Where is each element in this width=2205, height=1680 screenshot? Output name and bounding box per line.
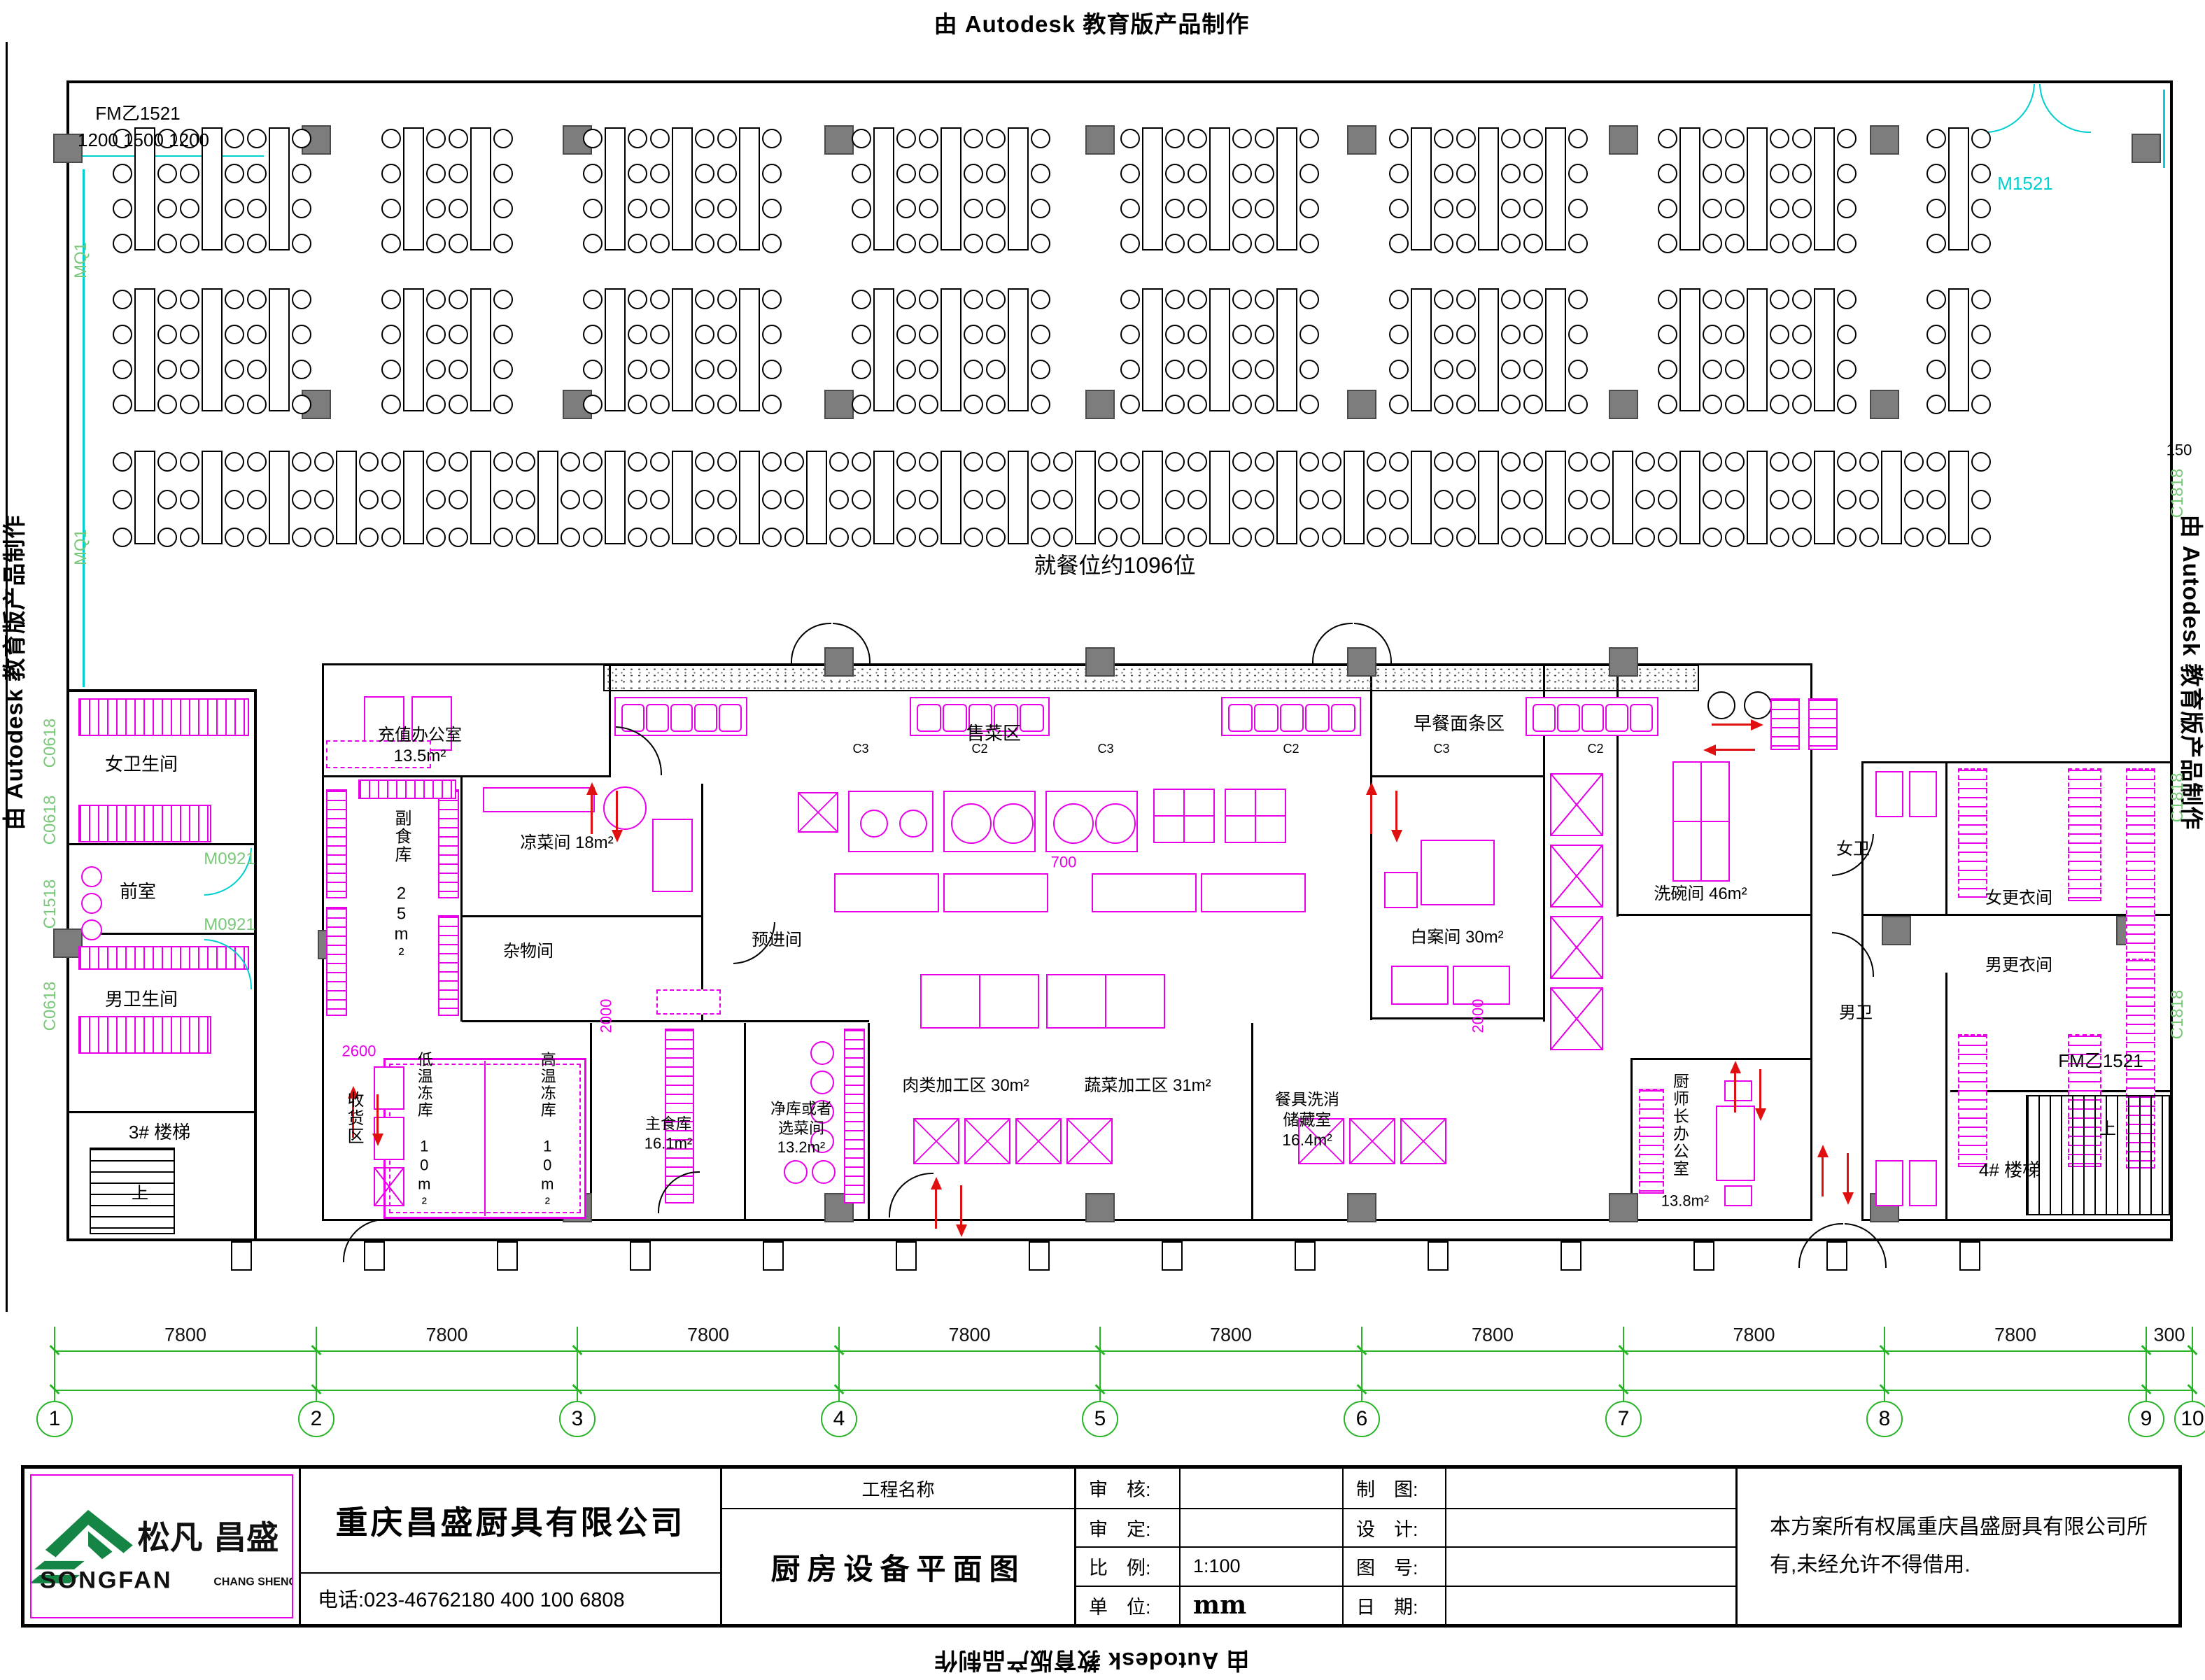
chair-icon [292, 129, 311, 148]
round-fixture [784, 1160, 808, 1184]
chair-icon [426, 528, 446, 547]
chair-icon [1120, 129, 1140, 148]
floor-plan: 1780027800378004780057800678007780087800… [0, 0, 2205, 1680]
worktable [1875, 771, 1903, 817]
chair-icon [1725, 129, 1745, 148]
door-arc [1832, 932, 1874, 977]
door-arc [658, 1171, 700, 1213]
chair-icon [1792, 164, 1812, 183]
grid-tick [577, 1327, 578, 1404]
plan-label: 男更衣间 [1985, 955, 2052, 976]
chair-icon [292, 199, 311, 218]
flow-arrow-icon [1817, 1145, 1829, 1205]
chair-icon [650, 395, 670, 414]
dining-table [336, 451, 357, 544]
chair-icon [157, 528, 177, 547]
structural-column [1347, 1193, 1376, 1222]
chair-icon [381, 490, 401, 509]
chair-icon [449, 360, 468, 379]
tray-slot [670, 704, 693, 732]
tray-slot [1228, 704, 1253, 732]
dining-table [1881, 451, 1902, 544]
chair-icon [1523, 199, 1543, 218]
field-label: 日 期: [1342, 1586, 1445, 1625]
chair-icon [762, 452, 782, 472]
chair-icon [1501, 129, 1521, 148]
chair-icon [1255, 234, 1274, 253]
chair-icon [986, 234, 1006, 253]
chair-icon [1703, 452, 1722, 472]
tray-slot [917, 704, 941, 732]
chair-icon [583, 199, 603, 218]
chair-icon [426, 199, 446, 218]
chair-icon [1770, 199, 1789, 218]
chair-icon [113, 452, 132, 472]
plan-label: MQ1 [71, 529, 92, 565]
chair-icon [695, 452, 714, 472]
locker-row [2068, 768, 2101, 901]
chair-icon [292, 395, 311, 414]
chair-icon [180, 325, 199, 344]
chair-icon [1255, 325, 1274, 344]
chair-icon [986, 528, 1006, 547]
chair-icon [628, 452, 647, 472]
sink-unit [1550, 845, 1603, 908]
field-value [1445, 1508, 1738, 1547]
chair-icon [1232, 528, 1252, 547]
chair-icon [247, 234, 267, 253]
burner-icon [899, 810, 927, 838]
chair-icon [1926, 164, 1946, 183]
chair-icon [1389, 234, 1409, 253]
chair-icon [1188, 452, 1207, 472]
round-fixture [81, 919, 102, 940]
chair-icon [426, 395, 446, 414]
chair-icon [1971, 234, 1991, 253]
chair-icon [113, 290, 132, 309]
chair-icon [583, 325, 603, 344]
chair-icon [247, 395, 267, 414]
dimension-value: 7800 [1733, 1325, 1775, 1346]
wall [744, 1023, 746, 1221]
chair-icon [1926, 528, 1946, 547]
chair-icon [1165, 199, 1185, 218]
chair-icon [1568, 528, 1588, 547]
chair-icon [561, 490, 580, 509]
chair-icon [1904, 490, 1924, 509]
dining-table-group [379, 441, 446, 551]
chair-icon [896, 395, 916, 414]
round-fixture [810, 1041, 834, 1065]
chair-icon [919, 164, 938, 183]
chair-icon [1971, 290, 1991, 309]
dining-table-group [1386, 278, 1453, 418]
grid-bubble: 4 [821, 1401, 857, 1437]
flow-arrow-icon [1730, 1061, 1741, 1121]
chair-icon [1188, 490, 1207, 509]
plan-label: C2 [971, 741, 987, 757]
chair-icon [225, 528, 244, 547]
chair-icon [1434, 164, 1453, 183]
dining-table [1948, 288, 1969, 411]
title-block: 松凡 昌盛 SONGFAN CHANG SHENG 重庆昌盛厨具有限公司 电话:… [21, 1465, 2182, 1628]
sink-unit [374, 1167, 404, 1206]
wall [701, 784, 703, 1022]
dining-table-group [714, 278, 782, 418]
chair-icon [762, 129, 782, 148]
chair-icon [1031, 164, 1050, 183]
chair-icon [1792, 325, 1812, 344]
chair-icon [1568, 325, 1588, 344]
plan-label: 女更衣间 [1985, 888, 2052, 909]
dining-table-group [1521, 441, 1588, 551]
stool [1744, 691, 1772, 719]
shelving-rack [78, 805, 211, 842]
dining-table-group [1722, 118, 1789, 257]
chair-icon [1389, 199, 1409, 218]
stool [1707, 691, 1735, 719]
door-swing-icon [1312, 623, 1353, 663]
tray-slot [1305, 704, 1330, 732]
chair-icon [113, 528, 132, 547]
dining-table [470, 127, 491, 250]
chair-icon [1120, 490, 1140, 509]
structural-column [1609, 125, 1638, 155]
chair-icon [1232, 360, 1252, 379]
door-arc [616, 726, 662, 775]
chair-icon [113, 164, 132, 183]
dining-table [1948, 451, 1969, 544]
plan-label: C0618 [40, 982, 61, 1031]
chair-icon [1456, 490, 1476, 509]
shelving-rack [844, 1029, 865, 1203]
structural-column [1870, 390, 1899, 419]
dining-table-group [983, 118, 1050, 257]
structural-column [2132, 134, 2161, 163]
dining-table-group [1924, 441, 1991, 551]
chair-icon [1456, 199, 1476, 218]
chair-icon [1837, 129, 1857, 148]
chair-icon [1299, 290, 1319, 309]
door-arc [1845, 1223, 1887, 1268]
chair-icon [113, 234, 132, 253]
chair-icon [1031, 199, 1050, 218]
chair-icon [1725, 164, 1745, 183]
chair-icon [1120, 360, 1140, 379]
chair-icon [986, 199, 1006, 218]
locker-row [1958, 768, 1987, 898]
chair-icon [1837, 290, 1857, 309]
flow-arrow-icon [956, 1177, 967, 1237]
chair-icon [1568, 129, 1588, 148]
plan-label: 上 [132, 1183, 148, 1204]
chair-icon [1770, 395, 1789, 414]
serving-tray-counter [1221, 697, 1361, 736]
dining-table [873, 288, 894, 411]
chair-icon [1703, 325, 1722, 344]
tray-slot [1331, 704, 1355, 732]
chair-icon [852, 360, 871, 379]
chair-icon [986, 129, 1006, 148]
chair-icon [1031, 395, 1050, 414]
chair-icon [762, 290, 782, 309]
chair-icon [561, 452, 580, 472]
chair-icon [986, 164, 1006, 183]
chair-icon [1434, 452, 1453, 472]
dining-table [1545, 451, 1566, 544]
chair-icon [1926, 490, 1946, 509]
chair-icon [426, 452, 446, 472]
chair-icon [1904, 452, 1924, 472]
structural-column [1347, 125, 1376, 155]
worktable [1724, 1185, 1752, 1206]
chair-icon [157, 395, 177, 414]
round-fixture [603, 786, 647, 830]
wall [462, 1020, 869, 1022]
dining-table [941, 127, 961, 250]
chair-icon [1971, 395, 1991, 414]
chair-icon [359, 528, 379, 547]
wall [462, 915, 703, 917]
chair-icon [919, 360, 938, 379]
chair-icon [1725, 290, 1745, 309]
chair-icon [1232, 290, 1252, 309]
door-swing-icon [1845, 1223, 1889, 1268]
chair-icon [1859, 528, 1879, 547]
chair-icon [1165, 325, 1185, 344]
grid-bubble: 7 [1605, 1401, 1642, 1437]
chair-icon [1770, 528, 1789, 547]
chair-icon [1389, 164, 1409, 183]
chair-icon [1165, 490, 1185, 509]
grid-tick [2146, 1327, 2147, 1404]
chair-icon [1232, 199, 1252, 218]
chair-icon [650, 290, 670, 309]
wall [1630, 1058, 1812, 1060]
chair-icon [1255, 290, 1274, 309]
plan-label: 女卫生间 [105, 753, 178, 776]
grid-bubble: 8 [1866, 1401, 1903, 1437]
chair-icon [381, 325, 401, 344]
chair-icon [1523, 360, 1543, 379]
chair-icon [964, 199, 983, 218]
chair-icon [1568, 199, 1588, 218]
chair-icon [695, 360, 714, 379]
chair-icon [1635, 490, 1655, 509]
dining-table-group [983, 278, 1050, 418]
company-logo: 松凡 昌盛 SONGFAN CHANG SHENG [30, 1474, 293, 1618]
wall [460, 775, 463, 1022]
chair-icon [157, 164, 177, 183]
chair-icon [628, 164, 647, 183]
worktable [1875, 1160, 1903, 1206]
chair-icon [1389, 129, 1409, 148]
chair-icon [695, 129, 714, 148]
chair-icon [292, 164, 311, 183]
shelving-rack [326, 907, 347, 1016]
chair-icon [762, 164, 782, 183]
field-value: 1:100 [1179, 1546, 1342, 1586]
dining-table-group [1118, 441, 1185, 551]
plan-label: C1818 [2167, 990, 2188, 1040]
tray-slot [1280, 704, 1304, 732]
chair-icon [1434, 199, 1453, 218]
dining-table [269, 288, 290, 411]
chair-icon [493, 199, 513, 218]
grid-bubble: 5 [1082, 1401, 1118, 1437]
dining-table-group [1453, 278, 1521, 418]
plan-label: 早餐面条区 [1414, 712, 1505, 735]
chair-icon [1971, 528, 1991, 547]
chair-icon [1523, 528, 1543, 547]
chair-icon [986, 395, 1006, 414]
locker-row [1958, 1034, 1987, 1167]
worktable [1201, 873, 1306, 912]
chair-icon [1299, 528, 1319, 547]
logo-cn-right: 昌盛 [213, 1520, 279, 1556]
dining-table-group [1252, 441, 1319, 551]
chair-icon [583, 452, 603, 472]
dining-table [1478, 451, 1499, 544]
chair-icon [1658, 395, 1677, 414]
chair-icon [1188, 395, 1207, 414]
chair-icon [381, 164, 401, 183]
chair-icon [1837, 490, 1857, 509]
dining-table-group [1722, 278, 1789, 418]
dining-table [1209, 288, 1230, 411]
burner-icon [1053, 803, 1094, 844]
sink-unit [913, 1118, 959, 1164]
chair-icon [1031, 528, 1050, 547]
plan-label: 杂物间 [503, 941, 554, 962]
chair-icon [1926, 234, 1946, 253]
dining-table [1142, 451, 1163, 544]
dining-table-group [849, 118, 916, 257]
chair-icon [1501, 528, 1521, 547]
chair-icon [225, 164, 244, 183]
chair-icon [650, 490, 670, 509]
tray-slot [1533, 704, 1556, 732]
dining-table [1612, 451, 1633, 544]
dining-table-group [1924, 278, 1991, 418]
dining-table-group [1319, 441, 1386, 551]
dimension-value: 7800 [164, 1325, 206, 1346]
tray-slot [943, 704, 967, 732]
chair-icon [1165, 360, 1185, 379]
structural-column [1085, 390, 1115, 419]
dining-table [739, 451, 760, 544]
plan-label: C1818 [2167, 469, 2188, 518]
chair-icon [1658, 528, 1677, 547]
worktable [1909, 771, 1937, 817]
dimension-value: 7800 [1210, 1325, 1252, 1346]
chair-icon [650, 234, 670, 253]
door-swing-icon [658, 1171, 700, 1213]
chair-icon [717, 199, 737, 218]
chair-icon [1188, 290, 1207, 309]
dining-table-group [244, 441, 311, 551]
chair-icon [919, 234, 938, 253]
chair-icon [1703, 290, 1722, 309]
dining-table [1814, 288, 1835, 411]
chair-icon [852, 129, 871, 148]
burner-icon [951, 803, 992, 844]
project-cell: 工程名称 厨房设备平面图 [720, 1469, 1074, 1624]
dining-table [202, 451, 223, 544]
chair-icon [1703, 129, 1722, 148]
chair-icon [1120, 395, 1140, 414]
serving-tray-counter [1526, 697, 1658, 736]
dining-table-group [311, 441, 379, 551]
door-swing-icon [833, 623, 873, 663]
chair-icon [1770, 325, 1789, 344]
worktable [1391, 966, 1449, 1005]
chair-icon [449, 129, 468, 148]
dining-table [672, 127, 693, 250]
chair-icon [1456, 452, 1476, 472]
chair-icon [1188, 199, 1207, 218]
chair-icon [628, 199, 647, 218]
dining-table [1276, 288, 1297, 411]
plan-label: 高温冻库 10m² [537, 1052, 557, 1213]
chair-icon [449, 234, 468, 253]
chair-icon [1703, 164, 1722, 183]
sink-unit [1550, 773, 1603, 836]
tray-slot [1630, 704, 1653, 732]
chair-icon [493, 395, 513, 414]
dining-table [605, 451, 626, 544]
company-cell: 重庆昌盛厨具有限公司 电话:023-46762180 400 100 6808 [299, 1469, 720, 1624]
dimension-value: 7800 [687, 1325, 729, 1346]
chair-icon [1837, 325, 1857, 344]
chair-icon [292, 360, 311, 379]
wall [66, 689, 255, 692]
pilaster [1295, 1241, 1316, 1271]
chair-icon [829, 490, 849, 509]
chair-icon [1434, 290, 1453, 309]
door-arc [1354, 623, 1392, 663]
chair-icon [247, 325, 267, 344]
chair-icon [829, 528, 849, 547]
flow-arrow-icon [1391, 782, 1402, 842]
chair-icon [896, 234, 916, 253]
tray-slot [719, 704, 742, 732]
dining-table [605, 127, 626, 250]
company-phone: 电话:023-46762180 400 100 6808 [301, 1572, 720, 1622]
plan-label: 3# 楼梯 [129, 1121, 190, 1144]
structural-column [1882, 916, 1911, 945]
grid-tick [316, 1327, 317, 1404]
dining-table [269, 451, 290, 544]
chair-icon [1031, 490, 1050, 509]
chair-icon [1232, 395, 1252, 414]
chair-icon [247, 290, 267, 309]
chair-icon [1165, 164, 1185, 183]
grid-tick [1099, 1327, 1101, 1404]
chair-icon [583, 234, 603, 253]
chair-icon [1456, 164, 1476, 183]
chair-icon [157, 290, 177, 309]
chair-icon [1501, 234, 1521, 253]
field-label: 图 号: [1342, 1546, 1445, 1586]
chair-icon [180, 360, 199, 379]
chair-icon [1322, 452, 1341, 472]
burner-icon [860, 810, 888, 838]
chair-icon [1770, 234, 1789, 253]
chair-icon [717, 164, 737, 183]
chair-icon [1568, 290, 1588, 309]
dining-table-group [1924, 118, 1991, 257]
